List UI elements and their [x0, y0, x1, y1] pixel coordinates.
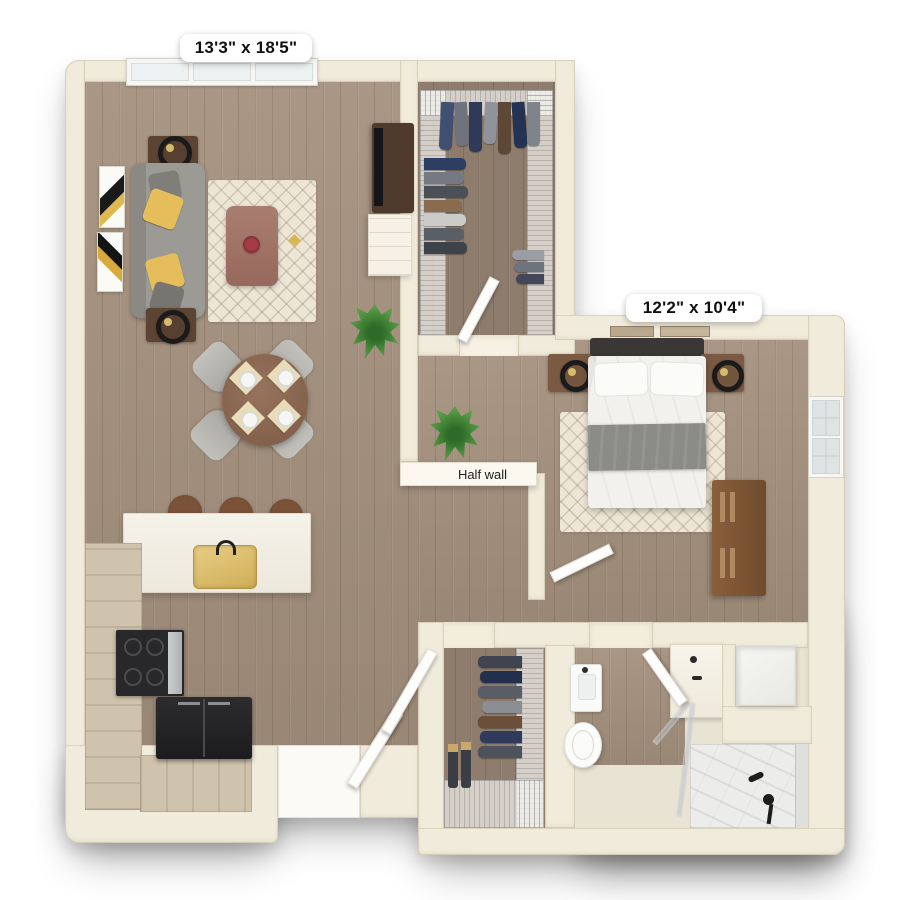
window-pane [131, 63, 189, 81]
wall-shelf-decor [660, 326, 710, 337]
hanging-clothes [512, 250, 544, 260]
vanity-faucet-icon [690, 656, 697, 663]
bathroom-threshold [590, 622, 652, 648]
low-white-cabinet [368, 214, 412, 276]
bedside-lamp-icon [712, 360, 744, 392]
hanging-clothes [439, 102, 454, 151]
stove-burner [146, 638, 164, 656]
hanging-clothes [516, 274, 544, 284]
bedroom-dimensions-tab: 12'2" x 10'4" [626, 294, 762, 322]
bedroom-dimensions-label: 12'2" x 10'4" [643, 298, 745, 318]
hanging-clothes [469, 102, 482, 152]
dinner-plate [239, 371, 257, 389]
refrigerator-handle [208, 702, 230, 705]
stove-burner [124, 668, 142, 686]
hanging-clothes [424, 228, 464, 240]
window-pane [812, 438, 840, 474]
boot-pair [448, 752, 458, 788]
dresser-drawer-slot [730, 492, 735, 522]
wall-left [65, 60, 85, 818]
window-pane [255, 63, 313, 81]
bedroom-window [808, 396, 844, 478]
table-lamp-icon [156, 310, 190, 344]
tv-screen [374, 128, 383, 206]
hanging-clothes [480, 731, 522, 743]
sofa-backrest [131, 163, 146, 318]
wall-shelf-decor [610, 326, 654, 337]
kitchen-counter-bottom [140, 755, 252, 812]
dinner-plate [241, 411, 259, 429]
wall-closet-bottom-a [418, 335, 460, 356]
hanging-clothes [498, 102, 511, 154]
living-room-window [126, 58, 318, 86]
shower-floor [690, 744, 808, 828]
niche-wall-bottom [722, 706, 812, 744]
bed-pillow [593, 361, 648, 397]
toilet-seat [572, 730, 594, 760]
hanging-clothes [424, 214, 466, 226]
flower-vase [243, 236, 260, 253]
wall-vestibule-mid [494, 622, 590, 648]
linen-cabinet [736, 646, 796, 706]
bed-headboard [590, 338, 704, 358]
hanging-clothes [478, 716, 522, 728]
wall-art-frame [99, 166, 125, 228]
hanging-clothes [424, 158, 466, 170]
hanging-clothes [424, 186, 468, 198]
window-pane [812, 400, 840, 436]
dinner-plate [277, 369, 295, 387]
dining-table [222, 354, 308, 446]
island-faucet-icon [216, 540, 236, 555]
half-wall: Half wall [400, 462, 537, 486]
wall-bottom [418, 828, 845, 855]
hanging-clothes [424, 242, 467, 254]
hanging-clothes [480, 671, 522, 683]
shower-back-wall-marble [795, 744, 808, 828]
refrigerator-handle [178, 702, 200, 705]
hallway-floor [418, 356, 545, 622]
hanging-clothes [514, 262, 544, 272]
bed-pillow [649, 361, 704, 397]
hanging-clothes [478, 746, 522, 758]
sink-faucet-icon [582, 667, 588, 673]
stove-burner [146, 668, 164, 686]
oven-control-panel [168, 632, 182, 694]
dresser-drawer-slot [720, 548, 725, 578]
closet-two-shelf-bottom [444, 780, 544, 828]
stove-burner [124, 638, 142, 656]
floor-plan-canvas: Half wall [0, 0, 900, 900]
hanging-clothes [424, 200, 462, 212]
dinner-plate [277, 409, 295, 427]
living-room-dimensions-tab: 13'3" x 18'5" [180, 34, 312, 62]
hanging-clothes [527, 102, 540, 146]
wall-closet-right [555, 60, 575, 356]
vanity-handle [692, 676, 702, 680]
hanging-clothes [482, 701, 522, 713]
hanging-clothes [478, 686, 522, 698]
dresser-drawer-slot [720, 492, 725, 522]
living-room-dimensions-label: 13'3" x 18'5" [195, 38, 297, 58]
dresser-drawer-slot [730, 548, 735, 578]
boot-pair [461, 750, 471, 788]
bed-throw-blanket [588, 423, 707, 471]
sink-basin [578, 674, 596, 700]
wall-art-frame [97, 232, 123, 292]
hanging-clothes [424, 172, 464, 184]
half-wall-label: Half wall [458, 467, 507, 482]
hanging-clothes [478, 656, 522, 668]
hanging-clothes [454, 102, 469, 147]
window-pane [193, 63, 251, 81]
refrigerator-door-seam [203, 699, 205, 757]
wall-hall-bedroom-divider [528, 473, 545, 600]
